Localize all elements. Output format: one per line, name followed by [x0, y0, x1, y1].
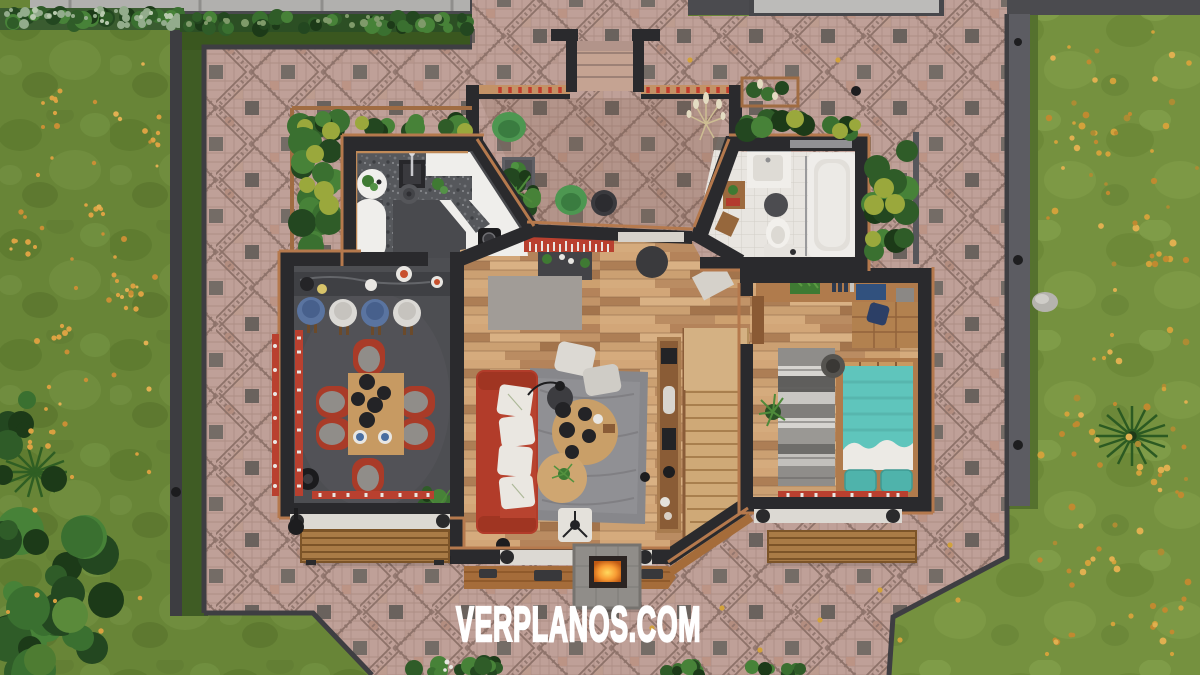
- svg-text:VERPLANOS.COM: VERPLANOS.COM: [456, 598, 701, 653]
